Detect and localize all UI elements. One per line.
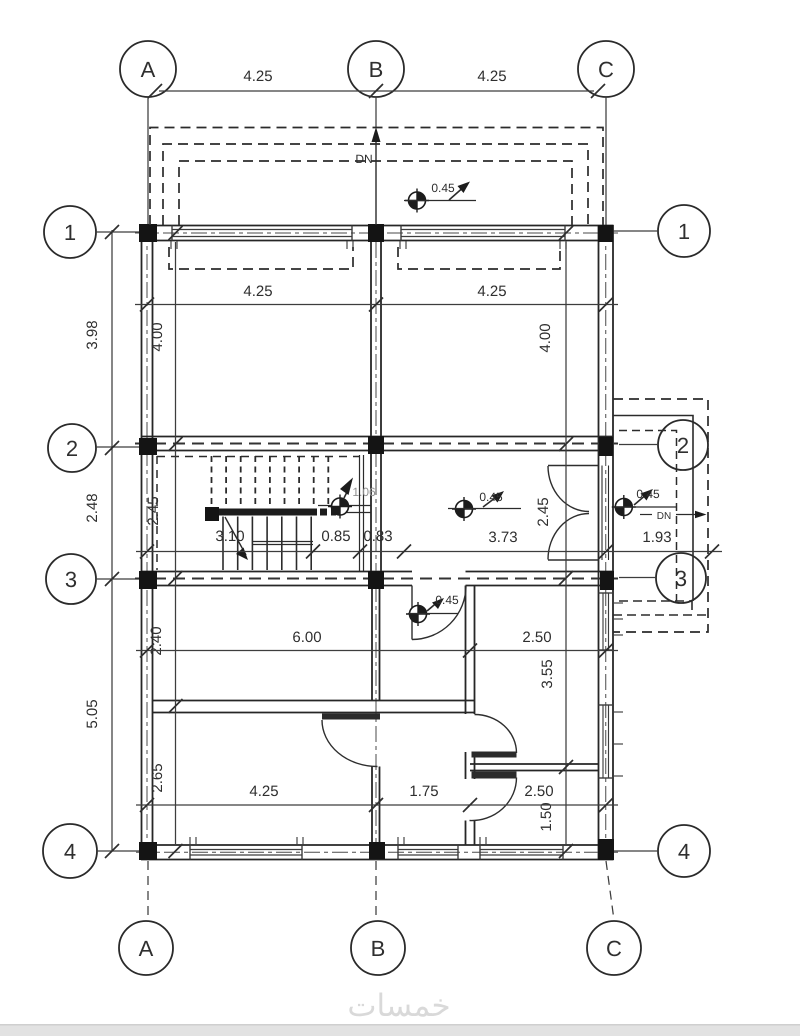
svg-text:0.45: 0.45 bbox=[431, 181, 455, 195]
svg-text:2.50: 2.50 bbox=[522, 629, 551, 646]
svg-text:5.05: 5.05 bbox=[84, 699, 101, 728]
svg-text:4.25: 4.25 bbox=[477, 283, 506, 300]
svg-text:1.93: 1.93 bbox=[642, 529, 671, 546]
svg-text:0.45: 0.45 bbox=[479, 490, 503, 504]
svg-text:2.45: 2.45 bbox=[535, 497, 552, 526]
svg-text:DN: DN bbox=[355, 152, 372, 166]
svg-text:2: 2 bbox=[677, 433, 689, 458]
svg-text:B: B bbox=[371, 936, 386, 961]
svg-text:2.50: 2.50 bbox=[524, 783, 553, 800]
svg-text:2.40: 2.40 bbox=[148, 626, 165, 655]
svg-text:4.25: 4.25 bbox=[249, 783, 278, 800]
svg-text:2: 2 bbox=[66, 436, 78, 461]
svg-text:0.85: 0.85 bbox=[321, 528, 350, 545]
svg-text:3.73: 3.73 bbox=[488, 529, 517, 546]
svg-text:4.00: 4.00 bbox=[149, 322, 166, 351]
svg-text:2.48: 2.48 bbox=[84, 493, 101, 522]
svg-text:4: 4 bbox=[678, 839, 690, 864]
svg-text:1: 1 bbox=[678, 219, 690, 244]
svg-text:6.00: 6.00 bbox=[292, 629, 321, 646]
svg-text:4: 4 bbox=[64, 839, 76, 864]
svg-text:1: 1 bbox=[64, 220, 76, 245]
svg-text:4.25: 4.25 bbox=[477, 68, 506, 85]
svg-text:A: A bbox=[139, 936, 154, 961]
svg-text:خمسات: خمسات bbox=[347, 988, 450, 1023]
svg-text:4.00: 4.00 bbox=[537, 323, 554, 352]
svg-text:C: C bbox=[606, 936, 622, 961]
svg-text:2.65: 2.65 bbox=[149, 763, 166, 792]
svg-text:4.25: 4.25 bbox=[243, 68, 272, 85]
svg-text:0.83: 0.83 bbox=[363, 528, 392, 545]
svg-text:3.55: 3.55 bbox=[539, 659, 556, 688]
svg-text:DN: DN bbox=[657, 511, 671, 522]
svg-text:A: A bbox=[141, 57, 156, 82]
svg-text:3: 3 bbox=[65, 567, 77, 592]
svg-text:2.45: 2.45 bbox=[145, 496, 162, 525]
svg-text:0.45: 0.45 bbox=[636, 487, 660, 501]
svg-text:4.25: 4.25 bbox=[243, 283, 272, 300]
svg-text:1.75: 1.75 bbox=[409, 783, 438, 800]
svg-text:1.50: 1.50 bbox=[538, 802, 555, 831]
svg-text:B: B bbox=[369, 57, 384, 82]
svg-text:0.45: 0.45 bbox=[435, 593, 459, 607]
svg-text:C: C bbox=[598, 57, 614, 82]
svg-text:3.10: 3.10 bbox=[215, 528, 244, 545]
svg-text:1.06: 1.06 bbox=[352, 485, 376, 499]
svg-text:3.98: 3.98 bbox=[84, 320, 101, 349]
